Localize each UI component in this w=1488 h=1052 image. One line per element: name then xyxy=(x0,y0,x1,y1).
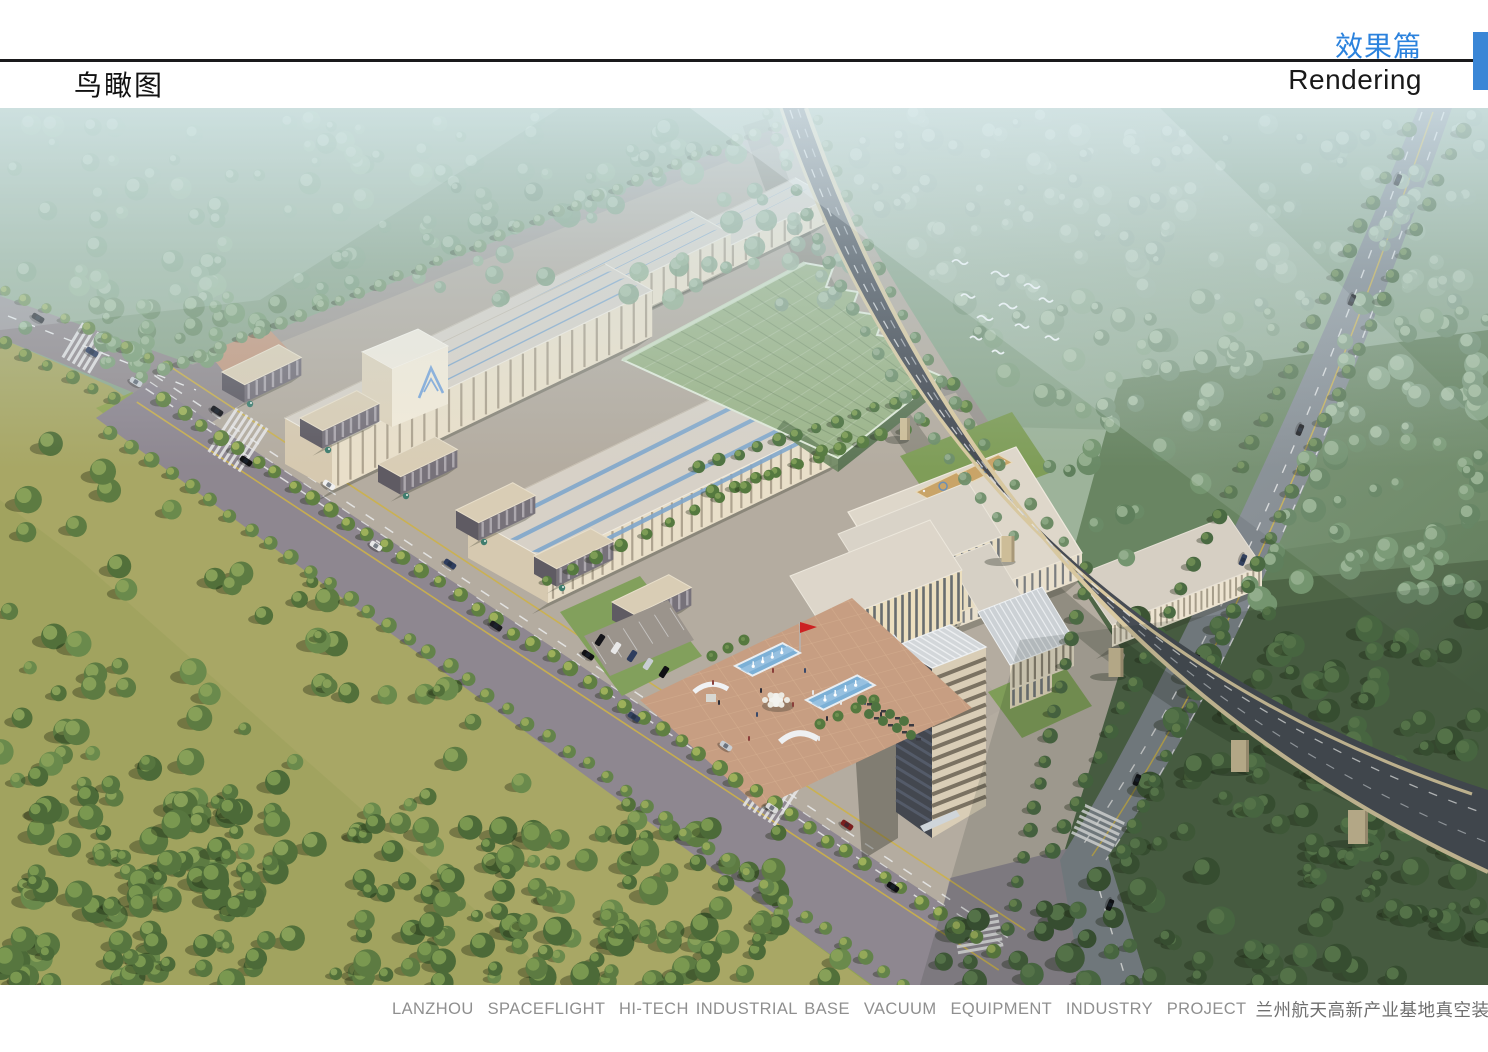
section-title-en: Rendering xyxy=(1288,64,1422,96)
footer-caption-cn: 兰州航天高新产业基地真空装备产业园项目 xyxy=(1256,997,1488,1022)
aerial-rendering-image xyxy=(0,108,1488,985)
page-title: 鸟瞰图 xyxy=(74,64,164,104)
header-accent-tab xyxy=(1473,32,1488,90)
aerial-rendering xyxy=(0,108,1488,985)
footer-caption: LANZHOU SPACEFLIGHT HI-TECH INDUSTRIAL B… xyxy=(392,996,1488,1022)
header-rule xyxy=(0,59,1488,62)
footer-caption-en: LANZHOU SPACEFLIGHT HI-TECH INDUSTRIAL B… xyxy=(392,1000,1247,1019)
